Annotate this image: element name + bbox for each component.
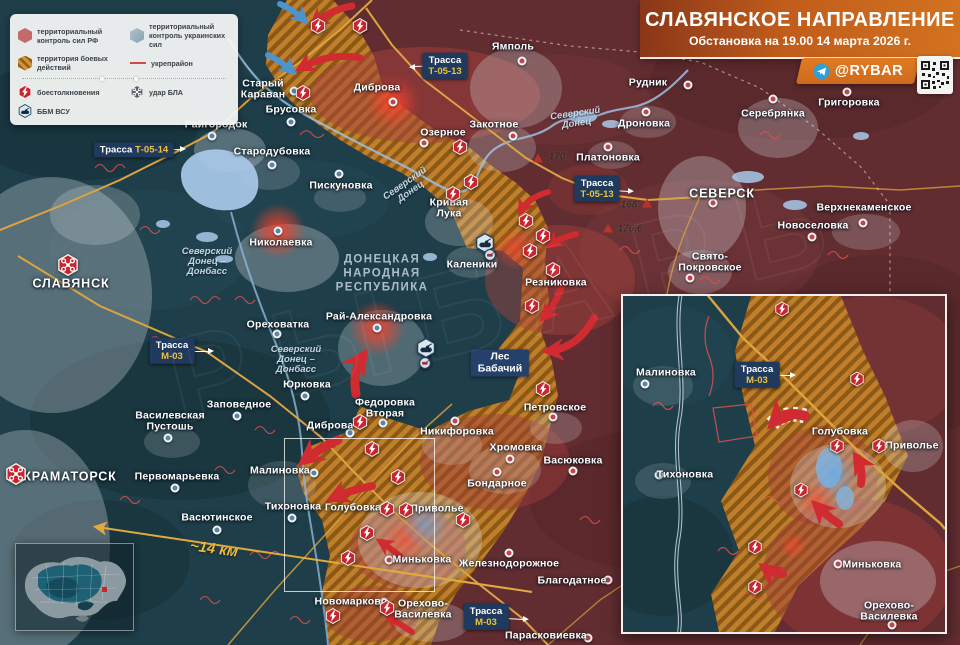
uav-strike-icon [130,85,144,99]
settlement-dot [301,392,310,401]
road-label: Трасса Т-05-14 [94,142,174,157]
legend-item-battle-zone: территория боевых действий [18,54,126,72]
telegram-icon [813,63,830,80]
road-label-code: М-03 [161,351,183,362]
clash-icon [379,600,395,616]
afv-secondary-icon [484,249,497,262]
clash-icon [794,483,809,498]
settlement-dot [420,139,429,148]
settlement-dot [505,549,514,558]
forest-label: Лес Бабачий [471,349,529,376]
ukraine-minimap-art [16,544,133,630]
clash-icon [452,139,468,155]
settlement-label: Платоновка [576,152,640,163]
legend-label: территория боевых действий [37,54,126,72]
settlement-dot [834,560,843,569]
settlement-dot [493,468,502,477]
height-label: 170 [549,152,566,163]
settlement-dot [273,330,282,339]
clash-icon [455,512,471,528]
road-label-prefix: Трасса [470,606,503,617]
clash-icon [545,262,561,278]
settlement-label: Никифоровка [420,426,494,437]
road-label-prefix: Трасса [100,144,133,155]
settlement-label: Озерное [420,127,466,138]
settlement-label: Пискуновка [309,180,372,191]
uav-strike-icon [5,463,27,485]
settlement-label: Хромовка [490,442,543,453]
settlement-dot [808,233,817,242]
settlement-label: Старый Караван [241,79,286,102]
distance-label: ~14 км [189,537,239,561]
settlement-label: Диброва [307,420,354,431]
region-label: ДОНЕЦКАЯ НАРОДНАЯ РЕСПУБЛИКА [336,253,429,294]
afv-secondary-icon [419,357,432,370]
clash-icon [748,580,763,595]
road-label-code: Т-05-13 [580,189,613,200]
afv-icon [416,338,436,358]
settlement-label: Приволье [885,440,938,451]
road-label: Трасса М-03 [735,362,780,388]
battle-zone-swatch-icon [18,56,32,71]
legend-label: удар БЛА [149,88,183,97]
road-label-code: М-03 [746,375,768,386]
clash-icon [830,439,845,454]
settlement-label: Васюковка [543,455,602,466]
legend-label: территориальный контроль украинских сил [149,22,230,49]
height-triangle-icon [603,224,613,233]
settlement-dot [335,170,344,179]
clash-icon [524,298,540,314]
settlement-label: Верхнекаменское [817,202,912,213]
settlement-dot [686,274,695,283]
clash-icon [872,439,887,454]
height-triangle-icon [642,199,652,208]
uav-strike-icon [57,254,79,276]
river-label: Северский Донец [382,165,435,210]
settlement-dot [859,219,868,228]
road-label-prefix: Трасса [156,340,189,351]
clash-icon [535,228,551,244]
clash-icon [325,608,341,624]
road-label-prefix: Трасса [741,364,774,375]
page-title: СЛАВЯНСКОЕ НАПРАВЛЕНИЕ [645,9,955,32]
settlement-label: Голубовка [812,426,868,437]
height-triangle-icon [533,154,543,163]
clash-icon [463,174,479,190]
title-banner: СЛАВЯНСКОЕ НАПРАВЛЕНИЕ Обстановка на 19.… [640,0,960,59]
settlement-label: СЕВЕРСК [689,187,755,201]
settlement-dot [451,417,460,426]
settlement-dot [373,324,382,333]
settlement-label: Орехово-Василевка [860,601,917,624]
legend-label: укрепрайон [151,59,193,68]
settlement-label: Малиновка [636,367,696,378]
settlement-dot [164,434,173,443]
road-label-prefix: Трасса [581,178,614,189]
settlement-dot [233,412,242,421]
settlement-label: Ореховатка [247,319,310,330]
road-label-code: М-03 [475,617,497,628]
legend-divider [22,78,226,79]
fortified-line-icon [130,62,146,64]
settlement-dot [506,455,515,464]
settlement-label: Николаевка [249,237,312,248]
clash-icon [522,243,538,259]
clash-icon [352,414,368,430]
settlement-dot [604,143,613,152]
legend-label: ББМ ВСУ [37,107,70,116]
road-label: Трасса М-03 [464,604,509,630]
settlement-label: Петровское [524,402,587,413]
settlement-dot [641,380,650,389]
legend-item-uav-strike: удар БЛА [130,85,230,99]
situation-map: РЫБАРЬ СЛАВЯНСККРАМАТОРСКСЕВЕРСКРайгород… [0,0,960,645]
settlement-dot [549,413,558,422]
qr-code [917,56,953,94]
settlement-label: Орехово- Василевка [394,599,451,622]
settlement-dot [287,118,296,127]
settlement-label: КРАМАТОРСК [23,470,116,484]
legend-label: территориальный контроль сил РФ [37,27,126,45]
settlement-label: Ямполь [492,41,534,52]
inset-source-rectangle [284,438,435,592]
legend-item-ua-control: территориальный контроль украинских сил [130,22,230,49]
settlement-dot [274,227,283,236]
clashes-icon [18,85,32,99]
river-label: Северский Донец [550,106,603,133]
settlement-label: Юрковка [283,379,331,390]
settlement-label: Миньковка [843,559,902,570]
clash-icon [775,302,790,317]
settlement-dot [843,88,852,97]
river-label: Северский Донец – Донбасс [182,247,232,277]
settlement-label: Новомарково [315,596,388,607]
road-label: Трасса Т-05-13 [422,53,467,79]
settlement-dot [769,95,778,104]
settlement-label: Заповедное [207,399,272,410]
settlement-dot [684,81,693,90]
channel-name: @RYBAR [835,63,903,79]
clash-icon [518,213,534,229]
clash-icon [748,540,763,555]
settlement-label: СЛАВЯНСК [32,277,109,291]
settlement-dot [642,108,651,117]
settlement-dot [213,526,222,535]
settlement-label: Первомарьевка [135,471,220,482]
settlement-dot [518,57,527,66]
settlement-dot [389,98,398,107]
settlement-label: Парасковиевка [505,630,587,641]
settlement-label: Благодатное [537,575,606,586]
legend-item-afv: ББМ ВСУ [18,104,126,118]
clash-icon [352,18,368,34]
settlement-label: Васютинское [181,512,252,523]
settlement-label: Бондарное [467,478,527,489]
settlement-label: Рудник [629,77,668,88]
ua-control-swatch-icon [130,28,144,43]
settlement-label: Диброва [354,82,401,93]
road-label: Трасса Т-05-13 [574,176,619,202]
settlement-label: Брусовка [266,104,317,115]
settlement-label: Железнодорожное [459,558,559,569]
settlement-label: Тихоновка [657,469,714,480]
clash-icon [535,381,551,397]
height-label: 168 [621,200,638,211]
settlement-label: Резниковка [525,277,587,288]
minimap-region-marker [102,587,107,592]
legend-item-fortified-area: укрепрайон [130,59,230,68]
settlement-dot [569,467,578,476]
height-label: 176,6 [617,224,642,235]
inset-map: МалиновкаТихоновкаГолубовкаПривольеМиньк… [621,294,947,634]
road-label-prefix: Трасса [429,55,462,66]
clash-icon [445,186,461,202]
settlement-label: Стародубовка [234,146,311,157]
settlement-label: Закотное [469,119,518,130]
river-label: Северский Донец – Донбасс [271,345,321,375]
inset-label-layer: МалиновкаТихоновкаГолубовкаПривольеМиньк… [623,296,945,632]
channel-badge: @RYBAR [796,58,920,84]
page-subtitle: Обстановка на 19.00 14 марта 2026 г. [689,34,911,48]
settlement-label: Дроновка [618,118,670,129]
settlement-label: Серебрянка [741,108,805,119]
settlement-dot [268,161,277,170]
settlement-label: Новоселовка [778,220,849,231]
afv-icon [18,104,32,118]
rf-control-swatch-icon [18,28,32,43]
settlement-dot [509,132,518,141]
clash-icon [850,372,865,387]
road-label: Трасса М-03 [150,338,195,364]
settlement-label: Свято- Покровское [678,252,741,275]
clash-icon [310,18,326,34]
settlement-label: Василевская Пустошь [135,411,205,434]
settlement-label: Рай-Александровка [326,311,432,322]
settlement-dot [208,132,217,141]
legend-item-rf-control: территориальный контроль сил РФ [18,27,126,45]
clash-icon [295,85,311,101]
road-label-code: Т-05-14 [135,144,168,155]
legend-item-clashes: боестолкновения [18,85,126,99]
legend-label: боестолкновения [37,88,100,97]
ukraine-minimap [15,543,134,631]
settlement-dot [171,484,180,493]
settlement-label: Григоровка [818,97,879,108]
road-label-code: Т-05-13 [428,66,461,77]
legend: территориальный контроль сил РФ территор… [10,14,238,125]
